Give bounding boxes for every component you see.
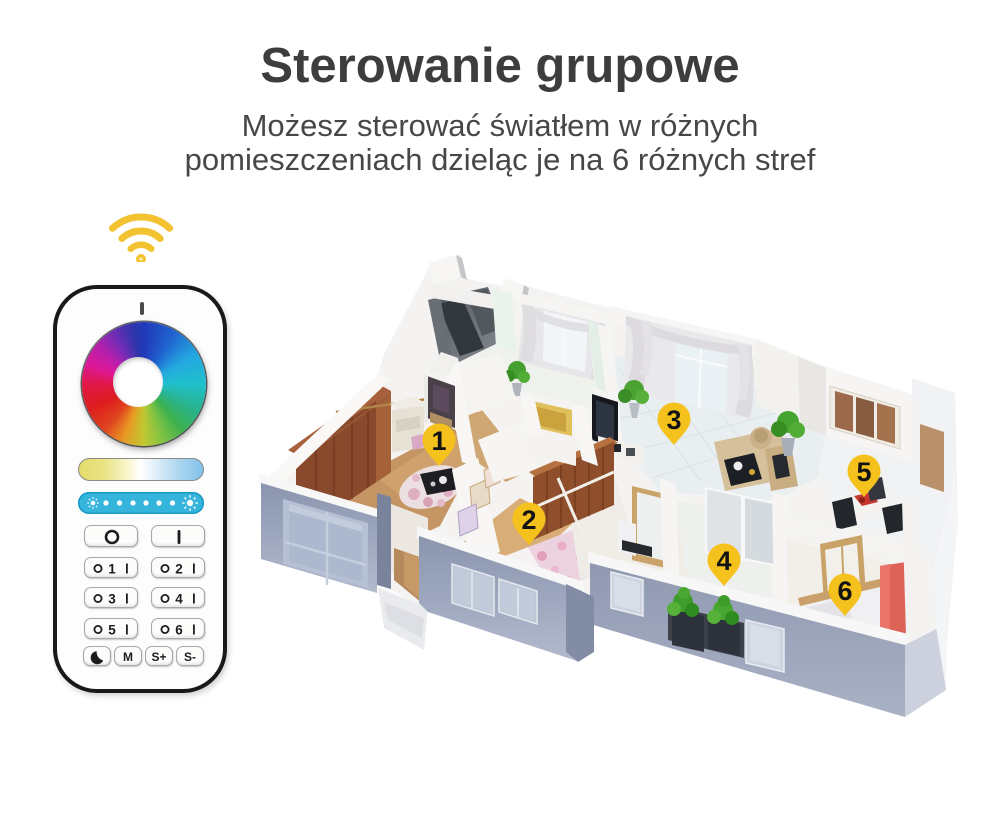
svg-text:2: 2 (521, 505, 536, 535)
svg-text:5: 5 (856, 457, 871, 487)
svg-text:4: 4 (716, 546, 731, 576)
svg-text:3: 3 (666, 405, 681, 435)
svg-text:1: 1 (431, 426, 446, 456)
svg-text:6: 6 (837, 576, 852, 606)
